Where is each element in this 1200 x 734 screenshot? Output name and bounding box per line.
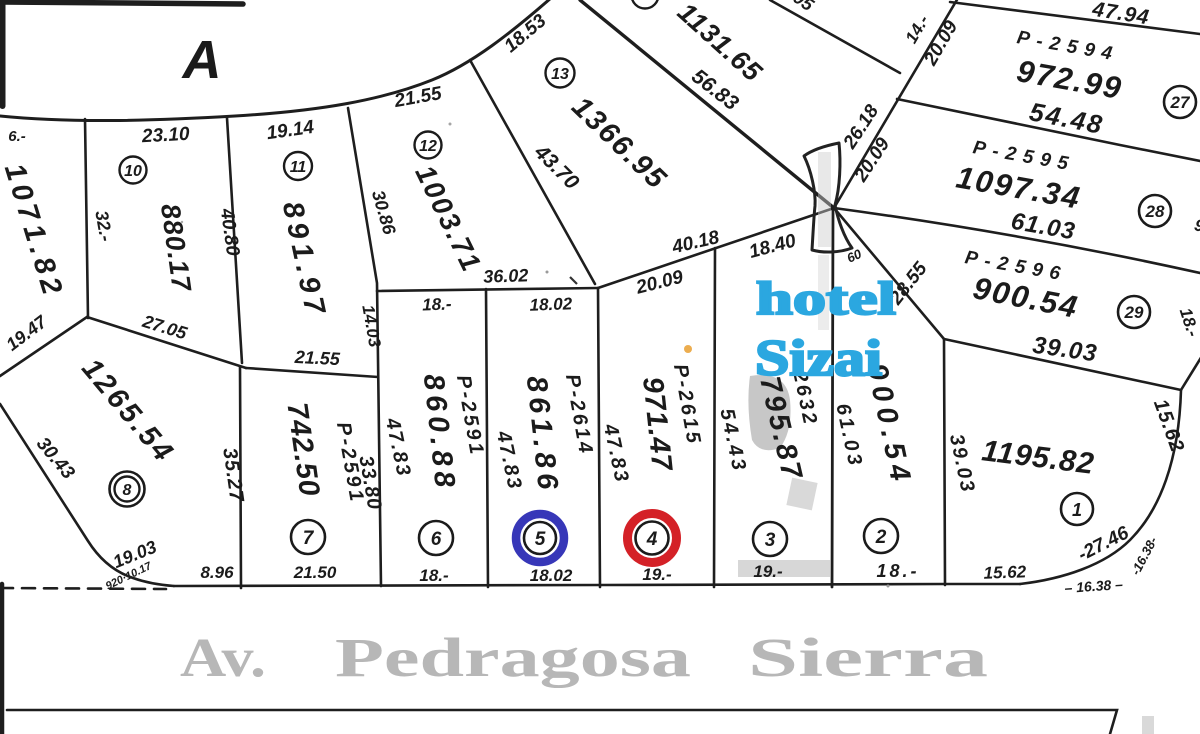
svg-text:23.10: 23.10 [140, 124, 190, 148]
svg-text:18.-: 18.- [876, 561, 919, 581]
svg-text:18.-: 18.- [422, 294, 452, 314]
svg-text:29: 29 [1124, 303, 1144, 322]
svg-text:Sierra: Sierra [748, 627, 988, 688]
svg-text:6.-: 6.- [8, 128, 26, 145]
svg-text:4: 4 [646, 529, 658, 550]
svg-text:15.62: 15.62 [983, 562, 1027, 582]
svg-text:2: 2 [875, 527, 887, 548]
svg-text:21.55: 21.55 [293, 347, 341, 369]
svg-text:10: 10 [124, 163, 142, 180]
svg-text:27: 27 [1170, 93, 1191, 112]
svg-text:18.02: 18.02 [529, 294, 573, 314]
svg-text:6: 6 [431, 529, 442, 550]
svg-text:36.02: 36.02 [483, 265, 529, 287]
svg-text:18.-: 18.- [419, 566, 449, 585]
svg-text:11: 11 [290, 159, 307, 176]
svg-text:5: 5 [535, 529, 546, 550]
svg-text:Sizai: Sizai [755, 331, 882, 387]
svg-text:8: 8 [123, 482, 132, 499]
svg-text:1: 1 [1072, 500, 1082, 520]
svg-text:18.02: 18.02 [530, 566, 573, 585]
svg-text:19.-: 19.- [753, 562, 783, 581]
svg-text:21.50: 21.50 [293, 563, 337, 582]
svg-text:19.-: 19.- [642, 565, 672, 584]
svg-text:13: 13 [551, 66, 569, 83]
svg-text:Av.: Av. [180, 627, 266, 688]
svg-text:A: A [181, 30, 222, 90]
svg-text:hotel: hotel [756, 273, 896, 325]
svg-text:7: 7 [303, 528, 315, 549]
svg-text:8.96: 8.96 [200, 563, 234, 582]
svg-text:3: 3 [765, 530, 776, 551]
svg-text:Pedragosa: Pedragosa [335, 627, 691, 688]
svg-text:28: 28 [1145, 202, 1165, 221]
svg-text:12: 12 [419, 138, 437, 155]
